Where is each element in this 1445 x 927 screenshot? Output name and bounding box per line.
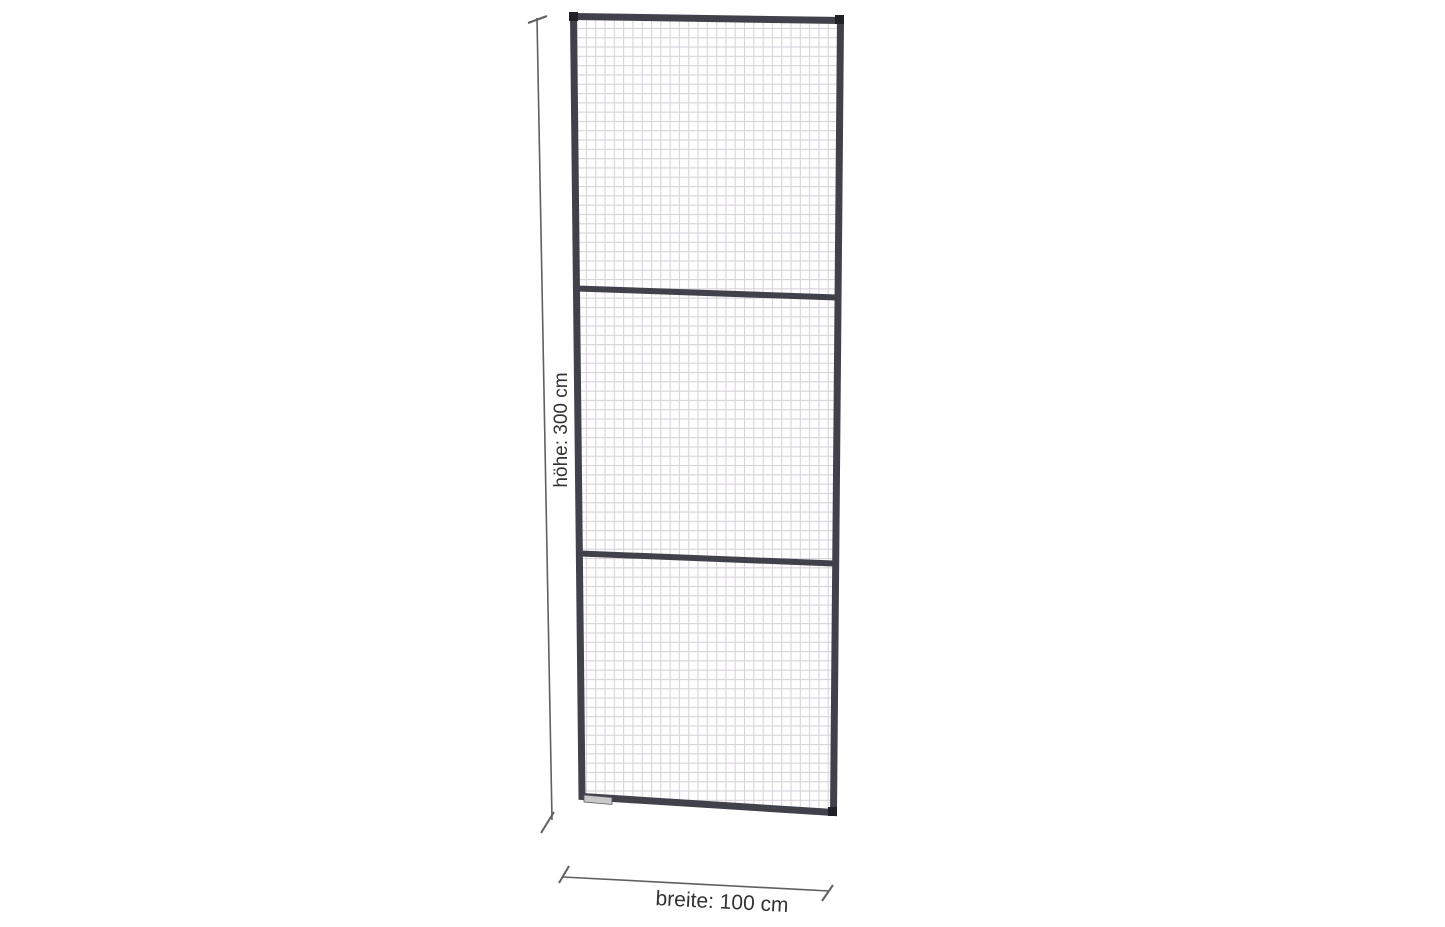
width-dimension-tick-left <box>559 866 569 883</box>
panel-frame <box>574 17 841 813</box>
corner-cap-top-left <box>569 12 578 21</box>
width-dimension-tick-right <box>822 885 833 901</box>
mesh-panel-technical-drawing: höhe: 300 cm breite: 100 cm <box>0 0 1445 927</box>
height-dimension-tick-bottom <box>541 812 554 833</box>
diagram-canvas: höhe: 300 cm breite: 100 cm <box>0 0 1445 927</box>
width-dimension-label: breite: 100 cm <box>655 887 789 917</box>
corner-cap-top-right <box>835 15 844 24</box>
corner-cap-bottom-right <box>828 807 837 816</box>
height-dimension-label: höhe: 300 cm <box>551 372 572 487</box>
height-dimension-line <box>537 18 552 820</box>
